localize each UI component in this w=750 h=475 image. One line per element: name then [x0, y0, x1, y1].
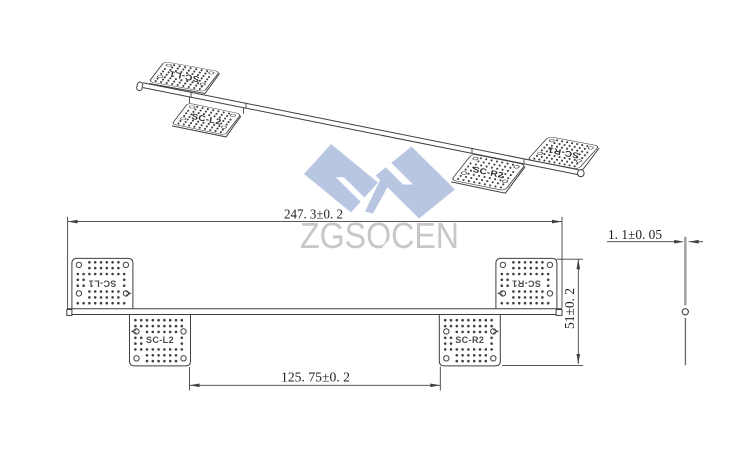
svg-text:SC-R1: SC-R1: [512, 279, 541, 289]
svg-text:1. 1±0. 05: 1. 1±0. 05: [608, 227, 662, 242]
svg-text:51±0. 2: 51±0. 2: [562, 288, 577, 329]
svg-text:SC-L1: SC-L1: [88, 279, 116, 289]
svg-text:125. 75±0. 2: 125. 75±0. 2: [281, 369, 350, 384]
svg-text:SC-R2: SC-R2: [455, 335, 484, 345]
svg-text:SC-L2: SC-L2: [146, 335, 174, 345]
svg-text:247. 3±0. 2: 247. 3±0. 2: [284, 206, 343, 221]
